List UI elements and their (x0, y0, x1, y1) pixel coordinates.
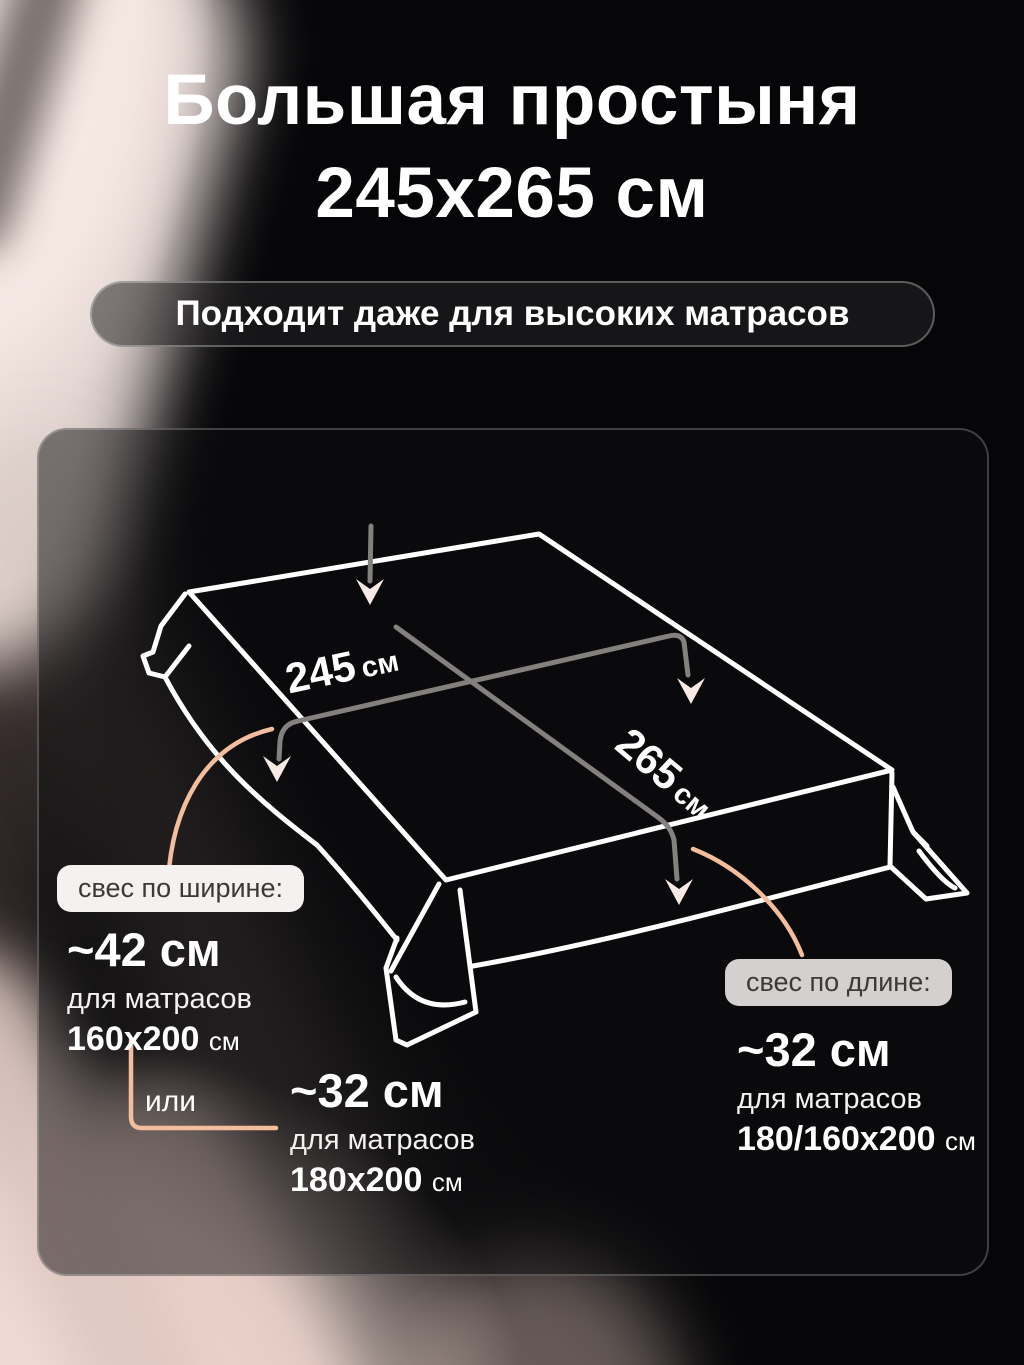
title-line-1: Большая простыня (0, 54, 1024, 147)
sheet-front-corner-fold (386, 890, 476, 1045)
sheet-right-fold-line (893, 787, 927, 846)
page-background: Большая простыня 245х265 см Подходит даж… (0, 0, 1024, 1365)
overhang-value: ~32 см (290, 1067, 475, 1116)
callout-arc-width (168, 729, 272, 882)
overhang-width-option-1: ~42 см для матрасов 160х200 см (67, 926, 252, 1059)
arrow-down-icon (677, 678, 705, 704)
sheet-front-fold-crease (396, 977, 465, 1005)
length-measure-start-shaft (370, 526, 371, 581)
feature-badge-label: Подходит даже для высоких матрасов (176, 294, 850, 334)
overhang-for-label: для матрасов (737, 1083, 976, 1116)
sheet-head-corner-flap (143, 594, 189, 677)
sheet-front-hem (473, 867, 890, 966)
mattress-size: 180/160х200 см (737, 1120, 976, 1159)
overhang-length-block: ~32 см для матрасов 180/160х200 см (737, 1026, 976, 1159)
mattress-size: 160х200 см (67, 1020, 252, 1059)
width-dimension-unit: см (358, 645, 401, 684)
overhang-length-pill-label: свес по длине: (746, 967, 931, 997)
title-line-2: 245х265 см (0, 147, 1024, 240)
mattress-size-value: 160х200 (67, 1020, 199, 1058)
overhang-value: ~42 см (67, 926, 252, 975)
overhang-width-option-2: ~32 см для матрасов 180х200 см (290, 1067, 475, 1200)
page-title: Большая простыня 245х265 см (0, 54, 1024, 240)
or-separator: или (145, 1085, 196, 1119)
mattress-size-unit: см (945, 1126, 976, 1156)
overhang-for-label: для матрасов (290, 1124, 475, 1157)
mattress-size-value: 180/160х200 (737, 1120, 936, 1158)
overhang-value: ~32 см (737, 1026, 976, 1075)
overhang-width-pill: свес по ширине: (57, 865, 304, 912)
feature-badge: Подходит даже для высоких матрасов (90, 281, 935, 347)
mattress-size-value: 180х200 (290, 1161, 422, 1199)
sheet-front-fold-line (391, 884, 439, 971)
arrow-down-icon (665, 879, 693, 905)
overhang-for-label: для матрасов (67, 983, 252, 1016)
diagram-panel: 245см 265см свес по ширине: ~42 см для м… (37, 428, 989, 1276)
overhang-width-pill-label: свес по ширине: (78, 873, 283, 903)
mattress-size-unit: см (209, 1026, 240, 1056)
overhang-length-pill: свес по длине: (725, 959, 952, 1006)
mattress-size-unit: см (432, 1167, 463, 1197)
mattress-size: 180х200 см (290, 1161, 475, 1200)
